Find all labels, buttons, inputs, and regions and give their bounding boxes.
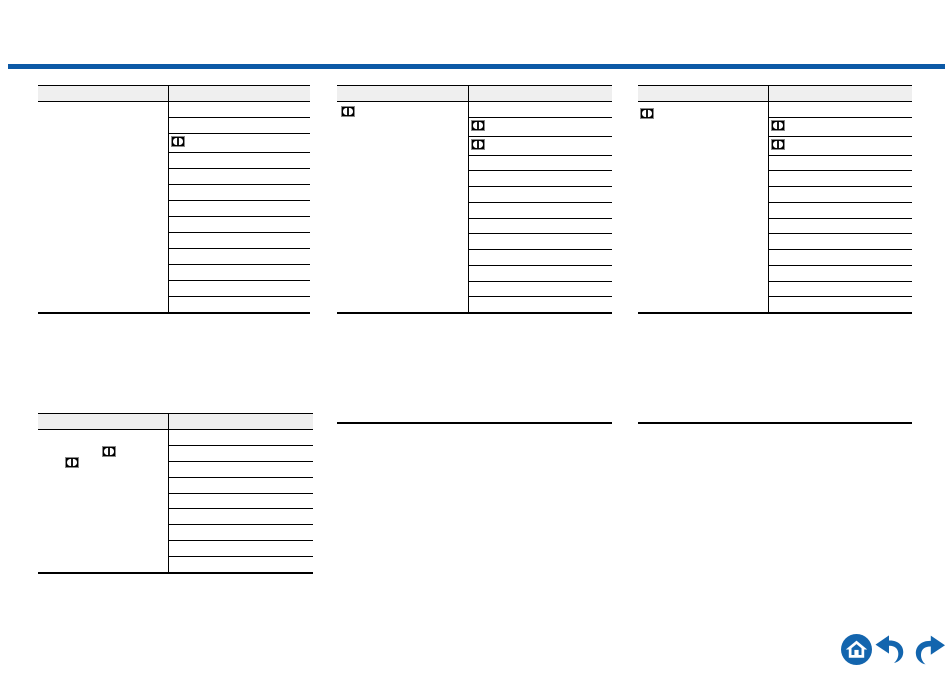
home-button[interactable] (841, 634, 872, 665)
next-page-icon (909, 655, 946, 670)
table-row (769, 250, 912, 266)
table-row (469, 118, 612, 137)
table-body (38, 430, 313, 572)
table-row (769, 219, 912, 235)
footnote-separator (638, 422, 912, 424)
next-page-button[interactable] (909, 634, 946, 667)
table-row (169, 118, 310, 134)
table-row (469, 297, 612, 312)
table-row (769, 282, 912, 298)
dolby-digital-icon (341, 106, 355, 117)
header-cell-right (769, 86, 912, 101)
right-column (169, 430, 313, 572)
table-row (769, 203, 912, 219)
table-row (469, 266, 612, 282)
table-body (337, 102, 612, 312)
page-nav-bar (841, 634, 946, 667)
footnote-separator (337, 422, 612, 424)
table-header-row (337, 86, 612, 102)
right-column (169, 102, 310, 312)
dolby-digital-icon (171, 136, 185, 147)
table-row (769, 156, 912, 172)
table-row (469, 137, 612, 156)
header-cell-left (38, 86, 169, 101)
table-row (169, 281, 310, 297)
table-row (469, 250, 612, 266)
merged-left-cell (337, 102, 469, 312)
table-row (769, 187, 912, 203)
table-bottom-left (38, 413, 313, 574)
table-row (169, 297, 310, 312)
table-row (169, 102, 310, 118)
table-header-row (638, 86, 912, 102)
table-row (169, 153, 310, 169)
table-top-left (38, 85, 310, 314)
header-cell-right (469, 86, 612, 101)
table-top-middle (337, 85, 612, 314)
merged-left-cell (38, 102, 169, 312)
dolby-digital-icon (771, 120, 785, 131)
table-row (169, 478, 313, 494)
header-cell-left (638, 86, 769, 101)
page-top-rule (8, 64, 945, 69)
table-row (469, 282, 612, 298)
previous-page-button[interactable] (874, 634, 907, 665)
merged-left-cell (638, 102, 769, 312)
table-row (169, 233, 310, 249)
table-row (769, 171, 912, 187)
table-row (469, 234, 612, 250)
dolby-digital-icon (471, 120, 485, 131)
table-row (169, 134, 310, 153)
header-cell-right (169, 414, 313, 429)
table-row (769, 102, 912, 118)
table-row (469, 203, 612, 219)
header-cell-left (337, 86, 469, 101)
home-icon (841, 653, 872, 668)
dolby-digital-icon (640, 108, 654, 119)
table-row (769, 266, 912, 282)
dolby-digital-icon (65, 457, 79, 468)
table-row (169, 509, 313, 525)
table-row (169, 201, 310, 217)
table-row (169, 462, 313, 478)
table-row (769, 297, 912, 312)
table-row (169, 249, 310, 265)
table-row (169, 265, 310, 281)
table-row (769, 118, 912, 137)
previous-page-icon (874, 653, 907, 668)
dolby-digital-icon (771, 139, 785, 150)
dolby-digital-icon (102, 446, 116, 457)
table-row (169, 185, 310, 201)
table-row (169, 557, 313, 572)
table-row (169, 169, 310, 185)
right-column (769, 102, 912, 312)
table-row (769, 234, 912, 250)
table-row (169, 494, 313, 510)
header-cell-right (169, 86, 310, 101)
table-row (169, 525, 313, 541)
table-row (469, 102, 612, 118)
table-body (38, 102, 310, 312)
table-row (469, 187, 612, 203)
table-top-right (638, 85, 912, 314)
table-row (469, 156, 612, 172)
table-row (769, 137, 912, 156)
merged-left-cell (38, 430, 169, 572)
table-row (469, 219, 612, 235)
right-column (469, 102, 612, 312)
table-row (469, 171, 612, 187)
table-row (169, 541, 313, 557)
table-row (169, 217, 310, 233)
table-header-row (38, 86, 310, 102)
table-header-row (38, 414, 313, 430)
manual-page (0, 0, 950, 673)
dolby-digital-icon (471, 139, 485, 150)
table-row (169, 430, 313, 446)
table-body (638, 102, 912, 312)
table-row (169, 446, 313, 462)
header-cell-left (38, 414, 169, 429)
